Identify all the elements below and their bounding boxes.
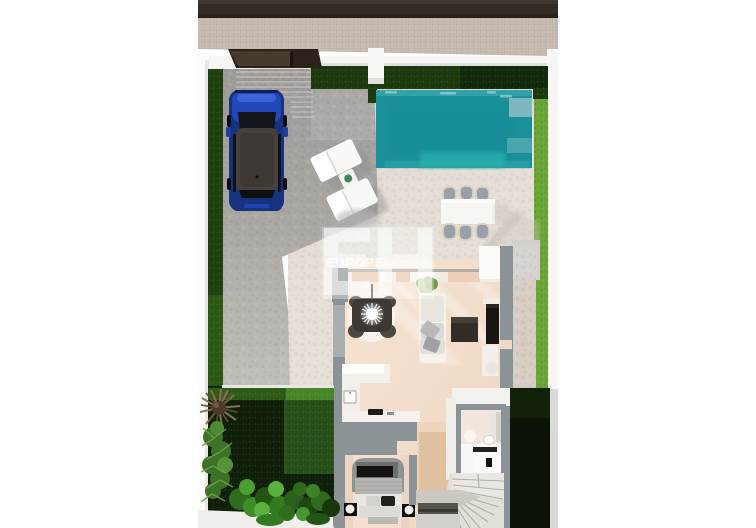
svg-text:EUROPE: EUROPE [326, 255, 384, 270]
svg-text:homes: homes [383, 256, 429, 270]
